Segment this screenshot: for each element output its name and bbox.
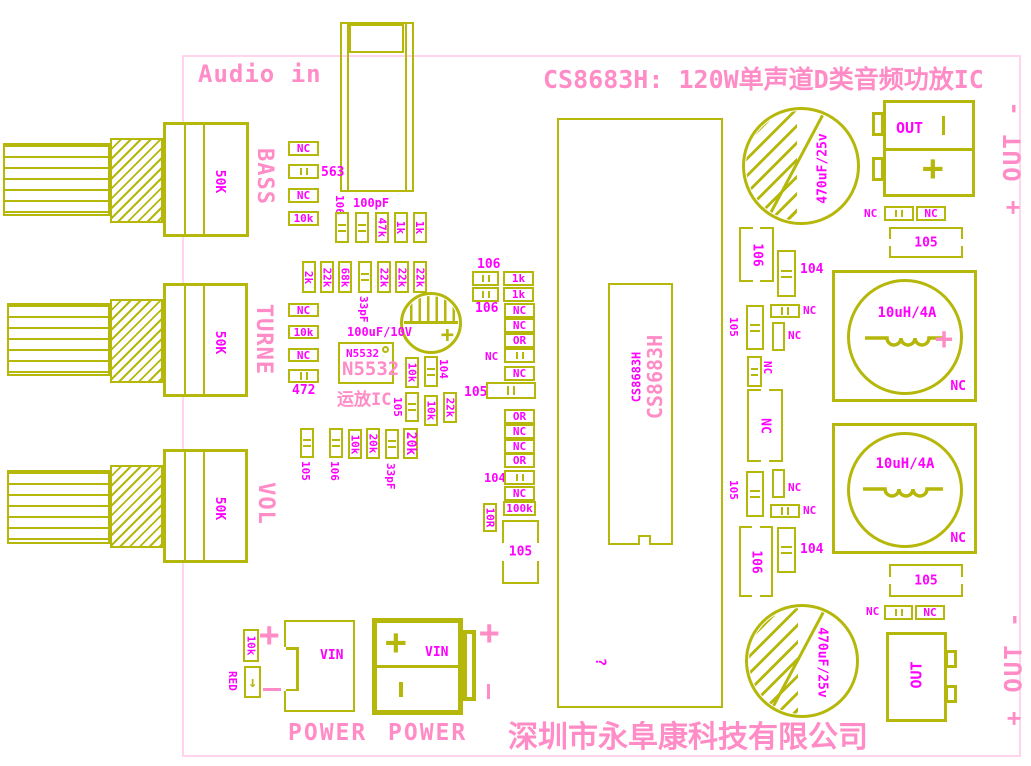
ic-mark: ?	[592, 658, 608, 666]
pot-bass-body: 50K	[163, 122, 249, 237]
terminal-divider	[377, 665, 458, 668]
part-nc: NC	[803, 505, 816, 516]
part-10r: 10R	[483, 503, 497, 532]
terminal-side-plus: +	[479, 616, 499, 650]
part-nc: NC	[288, 348, 319, 362]
part-value: 10k	[426, 401, 437, 421]
out-top-side-label: + OUT -	[999, 99, 1027, 214]
part-value: 10k	[246, 636, 257, 656]
terminal-label: VIN	[425, 645, 448, 660]
filmcap-bracket	[502, 561, 539, 584]
pot-vol-label: VOL	[253, 482, 278, 525]
pot-line	[184, 125, 186, 234]
part-value: 106	[750, 550, 763, 573]
out-top-tab	[872, 112, 884, 136]
out-top-minus	[942, 116, 945, 135]
power-terminal: + VIN	[372, 618, 463, 715]
part-22k: 22k	[443, 392, 457, 423]
part-value: 10R	[485, 508, 496, 528]
pot-bass-value: 50K	[212, 169, 227, 192]
part-value: 10k	[294, 213, 314, 224]
part-104: 104	[800, 263, 823, 276]
part-value: 2k	[304, 270, 315, 283]
part-value: 105	[914, 574, 937, 587]
part-value: OR	[513, 335, 526, 346]
opamp-ref-big: N5532	[342, 358, 399, 380]
cap-body	[472, 271, 499, 286]
part-value: NC	[759, 418, 772, 434]
part-105: 105	[502, 520, 539, 584]
cap-body	[288, 164, 319, 179]
part-nc: NC	[747, 389, 783, 462]
bulk-cap-top-value: 470uF/25v	[816, 133, 831, 203]
part-value: NC	[513, 368, 526, 379]
pot-line	[203, 452, 205, 560]
part-or: OR	[504, 453, 535, 468]
part-red: RED	[227, 671, 238, 691]
part-value: NC	[923, 607, 936, 618]
out-connector-top: OUT +	[883, 100, 975, 197]
part-nc: NC	[504, 303, 535, 318]
part-value: 106	[750, 243, 763, 266]
part-value: 22k	[397, 267, 408, 287]
part-value: 10k	[407, 363, 418, 383]
pot-turne-value: 50K	[212, 330, 227, 353]
cap-body	[504, 470, 535, 485]
pot-turne-knurl	[110, 299, 163, 383]
part-106: 106	[477, 258, 500, 271]
opamp-chip: N5532 N5532	[338, 342, 394, 384]
out-bottom-tab	[945, 685, 957, 703]
cap-body	[358, 261, 372, 293]
part-or: OR	[504, 409, 535, 424]
pot-bass-label: BASS	[252, 148, 277, 205]
part-nc: NC	[803, 305, 816, 316]
part-value: 20k	[404, 432, 417, 455]
pot-vol-shaft	[7, 470, 110, 544]
part-nc: NC	[866, 606, 879, 617]
part-nc: NC	[288, 188, 319, 203]
terminal-minus	[399, 682, 403, 697]
dc-jack-notch-line	[296, 647, 299, 691]
part-or: OR	[504, 333, 535, 348]
part-22k: 22k	[395, 261, 409, 293]
inductor-coil-icon	[861, 482, 945, 504]
part-value: 22k	[445, 398, 456, 418]
cap-body	[385, 429, 399, 459]
part-106: 106	[739, 526, 773, 597]
bulk-cap-bottom-value: 470uF/25v	[815, 627, 830, 697]
pot-bass-shaft	[3, 143, 110, 216]
part-104: 104	[438, 359, 449, 379]
part-value: OR	[513, 455, 526, 466]
pot-vol-body: 50K	[163, 449, 248, 563]
part-value: 22k	[379, 267, 390, 287]
part-value: NC	[513, 320, 526, 331]
part-nc: NC	[504, 439, 535, 454]
part-106: 106	[475, 302, 498, 315]
cap-hatch	[749, 608, 798, 714]
part-105: 105	[464, 386, 487, 399]
cap-body	[335, 212, 349, 243]
out-bottom-label: OUT	[908, 661, 926, 688]
part-nc: NC	[864, 208, 877, 219]
led-arrow-icon: ↓	[248, 675, 257, 690]
part-563: 563	[321, 166, 344, 179]
opamp-pin1-circle	[382, 346, 389, 353]
part-nc: NC	[288, 303, 319, 317]
part-nc: NC	[504, 486, 535, 501]
pot-bass-knurl	[110, 138, 163, 223]
out-top-label: OUT	[896, 119, 923, 137]
cap-body	[746, 305, 764, 350]
out-bottom-side-label: + OUT -	[1000, 610, 1028, 725]
cap-body	[772, 469, 785, 498]
audio-jack-inner-right	[405, 24, 407, 190]
cap-body	[770, 504, 800, 518]
part-value: OR	[513, 411, 526, 422]
out-bottom-tab	[945, 650, 957, 668]
terminal-side-minus	[487, 684, 490, 699]
part-105: 105	[889, 564, 963, 597]
cap-hatch	[746, 111, 797, 221]
filmcap-bracket	[502, 520, 539, 543]
part-value: 100k	[506, 503, 533, 514]
part-100k: 100k	[503, 501, 536, 516]
part-22k: 22k	[413, 261, 427, 293]
part-value: NC	[513, 305, 526, 316]
part-68k: 68k	[338, 261, 352, 293]
part-33pf: 33pF	[358, 296, 369, 323]
company-name: 深圳市永阜康科技有限公司	[508, 712, 868, 756]
opamp-caption: 运放IC	[337, 385, 391, 410]
inductor-2: 10uH/4A NC	[832, 423, 977, 554]
inductor-1-nc: NC	[950, 379, 966, 394]
part-nc: NC	[504, 318, 535, 333]
dc-jack-notch-line	[286, 689, 297, 692]
cap-body	[777, 250, 796, 297]
dc-jack-label: VIN	[320, 648, 343, 663]
cap-body	[355, 212, 369, 243]
part-nc: NC	[504, 366, 535, 381]
pot-line	[203, 125, 205, 234]
part-105: 105	[300, 461, 311, 481]
power-minus-mark	[263, 688, 281, 691]
cap-body	[405, 392, 419, 422]
opamp-cap-circle: +	[400, 292, 462, 354]
part-nc: NC	[504, 424, 535, 439]
part-value: 105	[914, 236, 937, 249]
bulk-cap-top	[742, 107, 860, 225]
cap-body	[300, 428, 314, 458]
part-value: NC	[297, 305, 310, 316]
part-100pf: 100pF	[353, 197, 389, 209]
dc-jack-notch-line	[286, 647, 297, 650]
part-value: NC	[513, 488, 526, 499]
part-value: 1k	[512, 289, 525, 300]
part-nc: NC	[915, 605, 945, 620]
cap-body	[288, 369, 319, 383]
pot-line	[203, 286, 205, 394]
part-1k: 1k	[394, 212, 408, 243]
part-nc: NC	[485, 351, 498, 362]
part-value: 1k	[415, 221, 426, 234]
led-diode: ↓	[244, 666, 261, 698]
part-value: NC	[513, 426, 526, 437]
part-1k: 1k	[503, 287, 534, 302]
cap-body	[746, 471, 764, 517]
part-value: 20k	[368, 434, 379, 454]
part-100uf/10v: 100uF/10V	[347, 326, 412, 338]
part-10k: 10k	[424, 395, 438, 426]
dc-jack-notch-cover	[283, 647, 287, 691]
pot-vol-knurl	[110, 465, 163, 548]
pot-line	[184, 452, 186, 560]
part-value: NC	[297, 190, 310, 201]
part-value: 10k	[294, 327, 314, 338]
part-value: 22k	[322, 267, 333, 287]
part-value: 22k	[415, 267, 426, 287]
pot-vol-value: 50K	[212, 496, 227, 519]
part-104: 104	[484, 472, 506, 484]
part-22k: 22k	[377, 261, 391, 293]
part-47k: 47k	[375, 212, 389, 243]
part-105: 105	[728, 480, 739, 500]
part-nc: NC	[916, 206, 946, 221]
inductor-1-value: 10uH/4A	[877, 305, 936, 321]
out-top-plus: +	[922, 151, 944, 187]
audio-in-label: Audio in	[198, 60, 322, 88]
part-10k: 10k	[288, 211, 319, 226]
part-106: 106	[329, 461, 340, 481]
bulk-cap-bottom	[745, 604, 859, 718]
cap-body	[472, 287, 499, 302]
part-value: 47k	[377, 218, 388, 238]
part-105: 105	[889, 227, 963, 258]
pcb-layout-screen: Audio in CS8683H: 120W单声道D类音频功放IC 深圳市永阜康…	[0, 0, 1031, 766]
part-value: 1k	[512, 273, 525, 284]
part-nc: NC	[788, 482, 801, 493]
ic-ref-big: CS8683H	[643, 335, 667, 419]
power-jack-caption: POWER	[288, 720, 367, 746]
part-value: NC	[513, 441, 526, 452]
cap-body	[747, 356, 762, 387]
cap-plus-mark: +	[441, 325, 454, 347]
part-value: 10k	[350, 434, 361, 454]
part-105: 105	[728, 317, 739, 337]
part-20k: 20k	[403, 428, 418, 459]
cap-body	[770, 304, 800, 318]
inductor-1-plus: +	[935, 325, 953, 355]
cap-hatch	[404, 296, 458, 321]
cap-body	[329, 428, 343, 458]
cap-body	[772, 322, 785, 351]
part-2k: 2k	[302, 261, 316, 293]
part-20k: 20k	[366, 428, 380, 459]
part-33pf: 33pF	[385, 463, 396, 490]
part-value: 1k	[396, 221, 407, 234]
cap-body	[486, 382, 536, 399]
part-value: NC	[924, 208, 937, 219]
part-22k: 22k	[320, 261, 334, 293]
part-nc: NC	[762, 361, 773, 374]
part-10k: 10k	[348, 429, 362, 459]
part-value: 105	[509, 546, 532, 559]
inductor-1: 10uH/4A + NC	[832, 270, 977, 402]
cap-body	[504, 348, 535, 363]
part-nc: NC	[288, 141, 319, 156]
inductor-2-nc: NC	[950, 531, 966, 546]
terminal-tab	[463, 630, 476, 701]
part-value: NC	[297, 143, 310, 154]
pot-turne-label: TURNE	[252, 303, 277, 374]
power-plus-mark: +	[259, 618, 279, 652]
part-1k: 1k	[413, 212, 427, 243]
inductor-2-value: 10uH/4A	[875, 456, 934, 472]
part-104: 104	[800, 543, 823, 556]
cap-body	[777, 527, 796, 573]
cap-body	[884, 605, 913, 620]
part-nc: NC	[788, 330, 801, 341]
pot-turne-shaft	[7, 303, 110, 376]
pot-turne-body: 50K	[163, 283, 248, 397]
part-value: 68k	[340, 267, 351, 287]
part-10k: 10k	[405, 357, 419, 388]
part-10k: 10k	[243, 629, 259, 662]
out-top-tab	[872, 157, 884, 181]
terminal-plus: +	[385, 625, 407, 661]
cap-body	[884, 206, 914, 221]
part-472: 472	[292, 384, 315, 397]
dc-jack: VIN	[284, 620, 355, 712]
audio-jack-tab	[349, 24, 404, 53]
part-1k: 1k	[503, 271, 534, 286]
ic-notch	[638, 535, 651, 545]
power-terminal-caption: POWER	[388, 720, 467, 746]
part-10k: 10k	[288, 325, 319, 339]
part-106: 106	[739, 227, 774, 282]
audio-jack	[340, 22, 414, 192]
cap-body	[424, 356, 438, 387]
page-title: CS8683H: 120W单声道D类音频功放IC	[543, 60, 984, 96]
pot-line	[184, 286, 186, 394]
part-105: 105	[392, 397, 403, 417]
part-value: NC	[297, 350, 310, 361]
